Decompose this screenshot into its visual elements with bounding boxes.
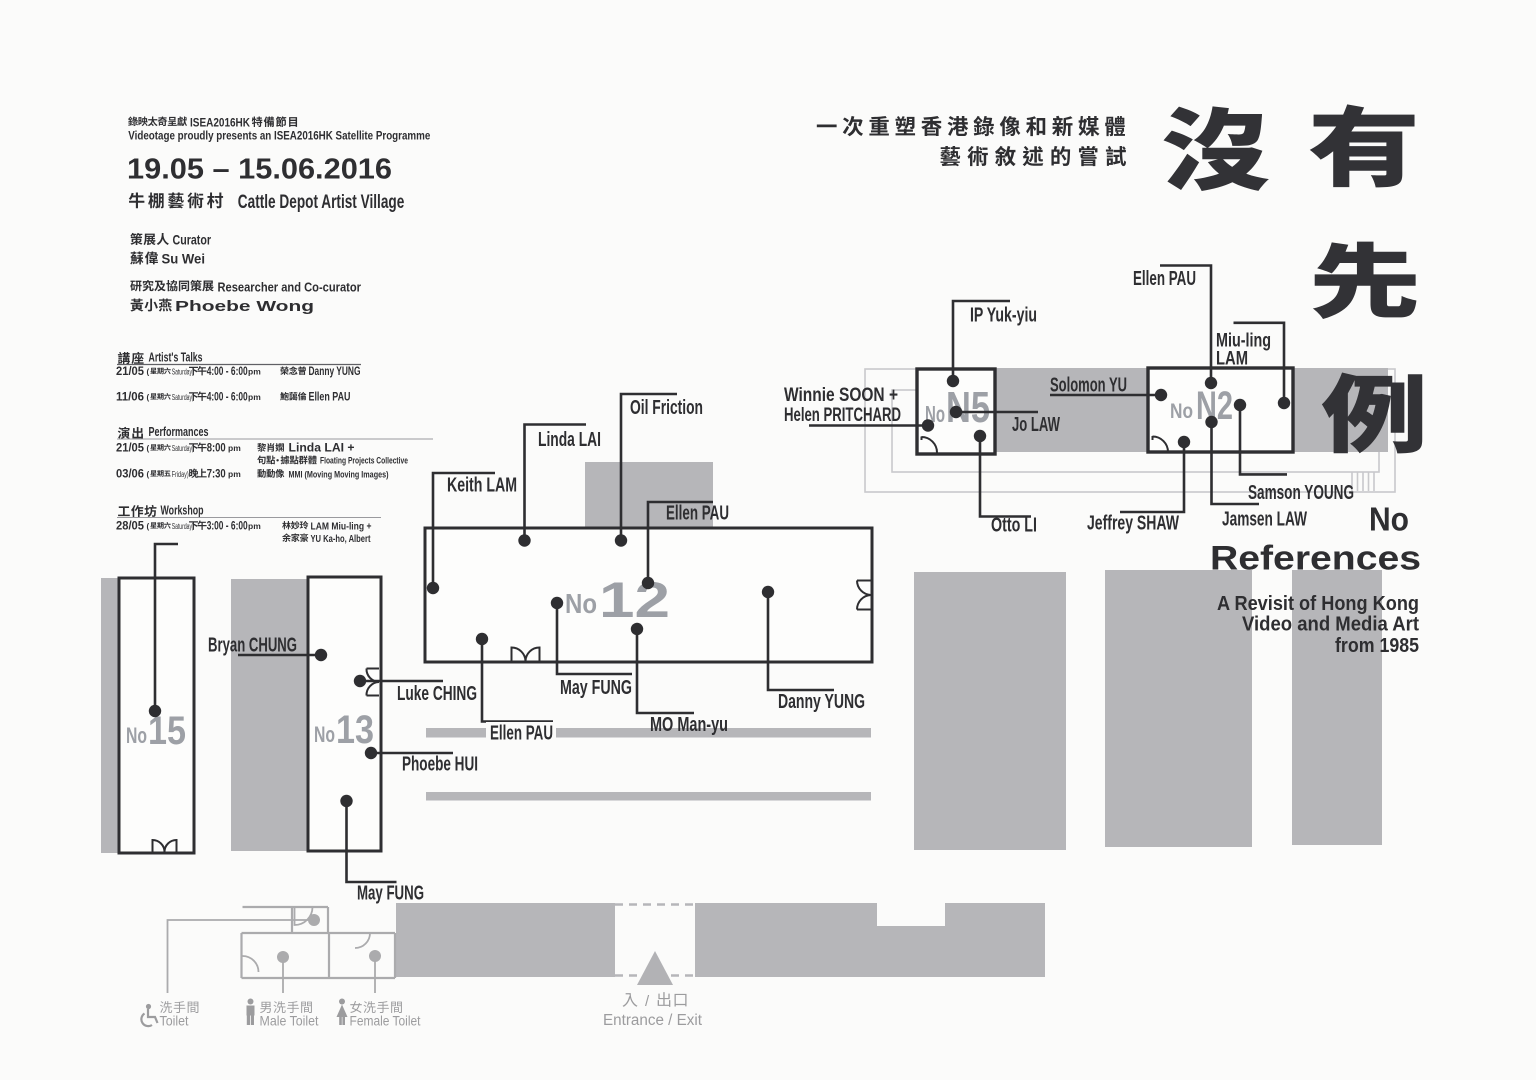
svg-text:Video and Media Art: Video and Media Art — [1242, 614, 1419, 636]
svg-text:No: No — [1369, 501, 1409, 538]
svg-text:Workshop: Workshop — [161, 504, 204, 518]
svg-text:(: ( — [147, 522, 150, 531]
svg-text:YU Ka-ho, Albert: YU Ka-ho, Albert — [311, 534, 372, 545]
svg-text:Oil Friction: Oil Friction — [630, 397, 703, 419]
svg-text:8:00: 8:00 — [207, 443, 226, 455]
svg-text:Videotage proudly presents an: Videotage proudly presents an ISEA2016HK… — [128, 131, 430, 143]
svg-text:Jo LAW: Jo LAW — [1012, 414, 1060, 436]
svg-text:7:30: 7:30 — [207, 469, 226, 481]
svg-text:Floating Projects Collective: Floating Projects Collective — [320, 456, 408, 467]
svg-text:12: 12 — [599, 572, 670, 628]
svg-text:No: No — [565, 588, 597, 619]
svg-text:4:00 - 6:00: 4:00 - 6:00 — [207, 366, 248, 378]
svg-text:A Revisit of Hong Kong: A Revisit of Hong Kong — [1217, 593, 1419, 615]
svg-text:Researcher and Co-curator: Researcher and Co-curator — [218, 281, 362, 295]
svg-text:IP Yuk-yiu: IP Yuk-yiu — [970, 305, 1037, 327]
svg-text:May FUNG: May FUNG — [560, 677, 632, 699]
svg-text:(: ( — [147, 444, 150, 453]
svg-text:Ellen PAU: Ellen PAU — [490, 723, 553, 745]
svg-text:Helen PRITCHARD: Helen PRITCHARD — [784, 405, 901, 426]
svg-text:Saturday): Saturday) — [172, 444, 194, 453]
svg-text:pm: pm — [248, 367, 261, 377]
svg-text:Linda LAI: Linda LAI — [538, 429, 601, 451]
svg-text:Otto LI: Otto LI — [991, 515, 1037, 537]
svg-text:Performances: Performances — [149, 425, 209, 439]
svg-text:21/05: 21/05 — [116, 443, 145, 455]
svg-text:pm: pm — [228, 469, 241, 479]
svg-text:No: No — [126, 723, 147, 748]
svg-text:Male Toilet: Male Toilet — [260, 1013, 319, 1029]
svg-text:(: ( — [147, 393, 150, 402]
svg-text:LAM Miu-ling +: LAM Miu-ling + — [311, 522, 372, 533]
svg-text:pm: pm — [248, 521, 261, 531]
svg-text:Ellen PAU: Ellen PAU — [666, 503, 729, 525]
svg-text:Jamsen LAW: Jamsen LAW — [1222, 509, 1307, 531]
svg-text:Female Toilet: Female Toilet — [350, 1013, 421, 1029]
svg-text:May FUNG: May FUNG — [357, 883, 424, 905]
svg-text:Ellen PAU: Ellen PAU — [1133, 268, 1196, 290]
svg-text:MO Man-yu: MO Man-yu — [650, 714, 728, 736]
svg-text:Winnie SOON +: Winnie SOON + — [784, 385, 898, 406]
svg-text:Entrance / Exit: Entrance / Exit — [603, 1012, 703, 1029]
svg-text:Saturday): Saturday) — [172, 522, 194, 531]
svg-text:Keith LAM: Keith LAM — [447, 475, 517, 497]
svg-text:11/06: 11/06 — [116, 392, 144, 404]
svg-text:Curator: Curator — [173, 233, 212, 248]
svg-text:Phoebe HUI: Phoebe HUI — [402, 754, 478, 776]
svg-text:Ellen PAU: Ellen PAU — [309, 392, 351, 404]
svg-text:03/06: 03/06 — [116, 469, 144, 481]
svg-text:pm: pm — [228, 443, 241, 453]
svg-text:Samson YOUNG: Samson YOUNG — [1248, 482, 1354, 504]
svg-text:Su Wei: Su Wei — [162, 251, 206, 267]
svg-text:Bryan CHUNG: Bryan CHUNG — [208, 635, 297, 657]
svg-text:21/05: 21/05 — [116, 366, 145, 378]
svg-text:13: 13 — [336, 708, 374, 752]
svg-text:Luke CHING: Luke CHING — [397, 683, 477, 705]
svg-text:Jeffrey SHAW: Jeffrey SHAW — [1087, 513, 1179, 535]
svg-text:from 1985: from 1985 — [1335, 635, 1419, 657]
svg-text:(: ( — [147, 470, 150, 479]
svg-text:Phoebe Wong: Phoebe Wong — [175, 298, 314, 315]
svg-text:No: No — [1170, 400, 1193, 423]
svg-text:Toilet: Toilet — [160, 1013, 189, 1029]
svg-text:Cattle Depot Artist Village: Cattle Depot Artist Village — [238, 192, 404, 213]
svg-text:28/05: 28/05 — [116, 521, 145, 533]
svg-text:Artist's Talks: Artist's Talks — [149, 351, 203, 365]
svg-text:4:00 - 6:00: 4:00 - 6:00 — [207, 392, 248, 404]
svg-text:No: No — [314, 722, 335, 747]
svg-text:ISEA2016HK: ISEA2016HK — [190, 116, 250, 130]
svg-text:19.05 – 15.06.2016: 19.05 – 15.06.2016 — [127, 154, 392, 186]
svg-text:MMI (Moving Moving Images): MMI (Moving Moving Images) — [289, 470, 389, 481]
svg-text:Danny YUNG: Danny YUNG — [778, 691, 865, 713]
svg-text:Danny YUNG: Danny YUNG — [309, 366, 361, 378]
svg-text:Friday): Friday) — [172, 470, 189, 479]
svg-text:References: References — [1210, 540, 1421, 578]
svg-text:Saturday): Saturday) — [172, 368, 194, 377]
svg-text:LAM: LAM — [1216, 349, 1248, 370]
svg-text:Linda LAI +: Linda LAI + — [289, 443, 355, 455]
svg-text:pm: pm — [248, 392, 261, 402]
svg-text:3:00 - 6:00: 3:00 - 6:00 — [207, 521, 248, 533]
svg-text:Saturday): Saturday) — [172, 393, 194, 402]
svg-text:(: ( — [147, 368, 150, 377]
svg-text:Solomon YU: Solomon YU — [1050, 375, 1127, 397]
